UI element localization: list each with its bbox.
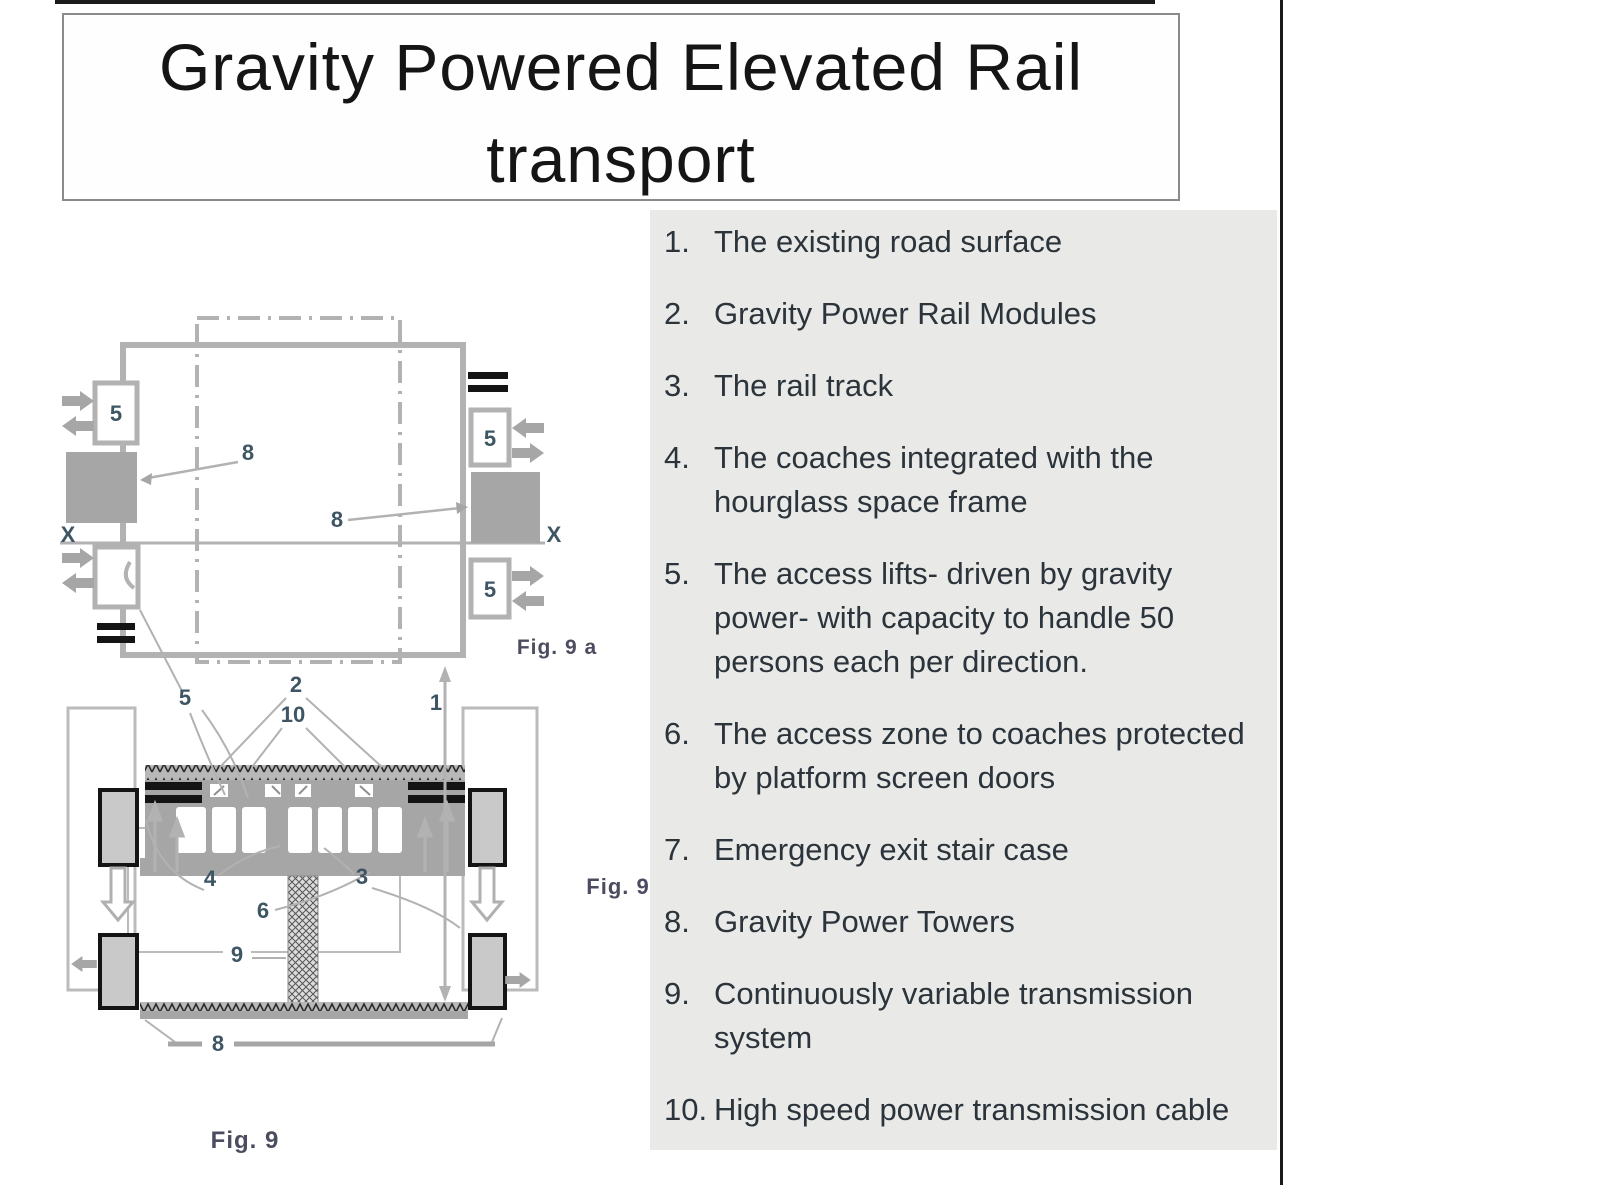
legend-item-number: 3. [664, 364, 714, 408]
legend-item-9: 9.Continuously variable transmission sys… [664, 972, 1269, 1060]
fig9a-leader-tower-left [148, 462, 238, 478]
legend-item-10: 10.High speed power transmission cable [664, 1088, 1269, 1132]
legend-item-text: The existing road surface [714, 220, 1269, 264]
legend-item-2: 2.Gravity Power Rail Modules [664, 292, 1269, 336]
fig9a-tower-left [66, 452, 137, 523]
fig9a-centerline-box [197, 318, 400, 662]
legend-item-number: 5. [664, 552, 714, 684]
fig9-ground-bar [140, 1011, 468, 1019]
fig9a-label-lift-tr: 5 [484, 426, 496, 451]
fig9-lift-car-left-lower [100, 935, 137, 1008]
legend-item-text: High speed power transmission cable [714, 1088, 1269, 1132]
legend-item-text: The access lifts- driven by gravity powe… [714, 552, 1269, 684]
fig9a-label-lift-tl: 5 [110, 401, 122, 426]
fig9-lift-car-right-upper [470, 790, 505, 865]
figures-area: X X 8 8 5 5 5 Fig. 9 a [40, 280, 660, 1160]
legend-item-1: 1.The existing road surface [664, 220, 1269, 264]
fig9-road-surface [145, 765, 465, 780]
fig9-caption-side: Fig. 9 [586, 874, 649, 899]
title-box: Gravity Powered Elevated Rail transport [62, 13, 1180, 201]
fig9a-plan-view: X X 8 8 5 5 5 Fig. 9 a [60, 318, 597, 693]
legend-panel: 1.The existing road surface2.Gravity Pow… [650, 210, 1277, 1150]
fig9-label-access: 6 [257, 898, 269, 923]
fig9a-label-tower-right: 8 [331, 507, 343, 532]
legend-item-5: 5.The access lifts- driven by gravity po… [664, 552, 1269, 684]
fig9a-leader-arrowhead-left [140, 473, 152, 485]
legend-item-number: 4. [664, 436, 714, 524]
fig9-label-cvt: 9 [231, 942, 243, 967]
fig9a-station-outline [123, 345, 463, 655]
legend-item-number: 10. [664, 1088, 714, 1132]
legend-item-8: 8.Gravity Power Towers [664, 900, 1269, 944]
legend-item-number: 6. [664, 712, 714, 800]
legend-item-7: 7.Emergency exit stair case [664, 828, 1269, 872]
fig9a-to-fig9-leader [140, 610, 183, 693]
fig9-label-towers: 8 [212, 1031, 224, 1056]
legend-list: 1.The existing road surface2.Gravity Pow… [664, 220, 1269, 1132]
fig9a-lift-box-bottom-left [95, 547, 138, 607]
right-border-rule [1280, 0, 1283, 1185]
fig9-ground-hatch [140, 1002, 468, 1011]
legend-item-text: Gravity Power Rail Modules [714, 292, 1269, 336]
fig9a-caption: Fig. 9 a [517, 636, 597, 659]
legend-item-text: Continuously variable transmission syste… [714, 972, 1269, 1060]
page-title-line1: Gravity Powered Elevated Rail [64, 21, 1178, 113]
top-border-rule [55, 0, 1155, 4]
legend-item-text: Gravity Power Towers [714, 900, 1269, 944]
fig9-lift-car-left-upper [100, 790, 137, 865]
fig9-cvt-column [288, 876, 318, 1004]
fig9-label-cable: 10 [281, 702, 305, 727]
legend-item-6: 6.The access zone to coaches protected b… [664, 712, 1269, 800]
fig9a-track-symbol-top-right [468, 372, 508, 392]
fig9-label-road: 1 [430, 690, 442, 715]
fig9-elevation-view: 5 2 10 1 4 3 6 9 8 Fig. 9 Fig. 9 [68, 666, 650, 1154]
fig9-label-lift: 5 [179, 685, 191, 710]
fig9a-tower-right [471, 472, 540, 543]
fig9-label-track: 3 [356, 864, 368, 889]
fig9-label-modules: 2 [290, 672, 302, 697]
legend-item-number: 7. [664, 828, 714, 872]
legend-item-number: 2. [664, 292, 714, 336]
fig9a-label-tower-left: 8 [242, 440, 254, 465]
legend-item-number: 1. [664, 220, 714, 264]
legend-item-text: The rail track [714, 364, 1269, 408]
figures-svg: X X 8 8 5 5 5 Fig. 9 a [40, 280, 660, 1160]
legend-item-text: The access zone to coaches protected by … [714, 712, 1269, 800]
fig9a-label-lift-br: 5 [484, 577, 496, 602]
fig9a-axis-label-right: X [547, 522, 562, 547]
fig9-height-arrow-top [439, 666, 451, 682]
fig9-caption-bottom: Fig. 9 [211, 1127, 280, 1154]
fig9-lift-car-right-lower [470, 935, 505, 1008]
page: Gravity Powered Elevated Rail transport … [0, 0, 1600, 1200]
fig9-platform-beam [140, 858, 465, 876]
legend-item-text: The coaches integrated with the hourglas… [714, 436, 1269, 524]
legend-item-text: Emergency exit stair case [714, 828, 1269, 872]
legend-item-3: 3.The rail track [664, 364, 1269, 408]
fig9a-axis-label-left: X [61, 522, 76, 547]
legend-item-number: 8. [664, 900, 714, 944]
fig9a-track-symbol-bottom-left [97, 623, 135, 643]
fig9-label-coaches: 4 [204, 866, 217, 891]
fig9a-leader-tower-right [348, 508, 460, 520]
legend-item-number: 9. [664, 972, 714, 1060]
legend-item-4: 4.The coaches integrated with the hourgl… [664, 436, 1269, 524]
page-title-line2: transport [64, 113, 1178, 205]
fig9-height-arrow-bottom [439, 986, 451, 1002]
